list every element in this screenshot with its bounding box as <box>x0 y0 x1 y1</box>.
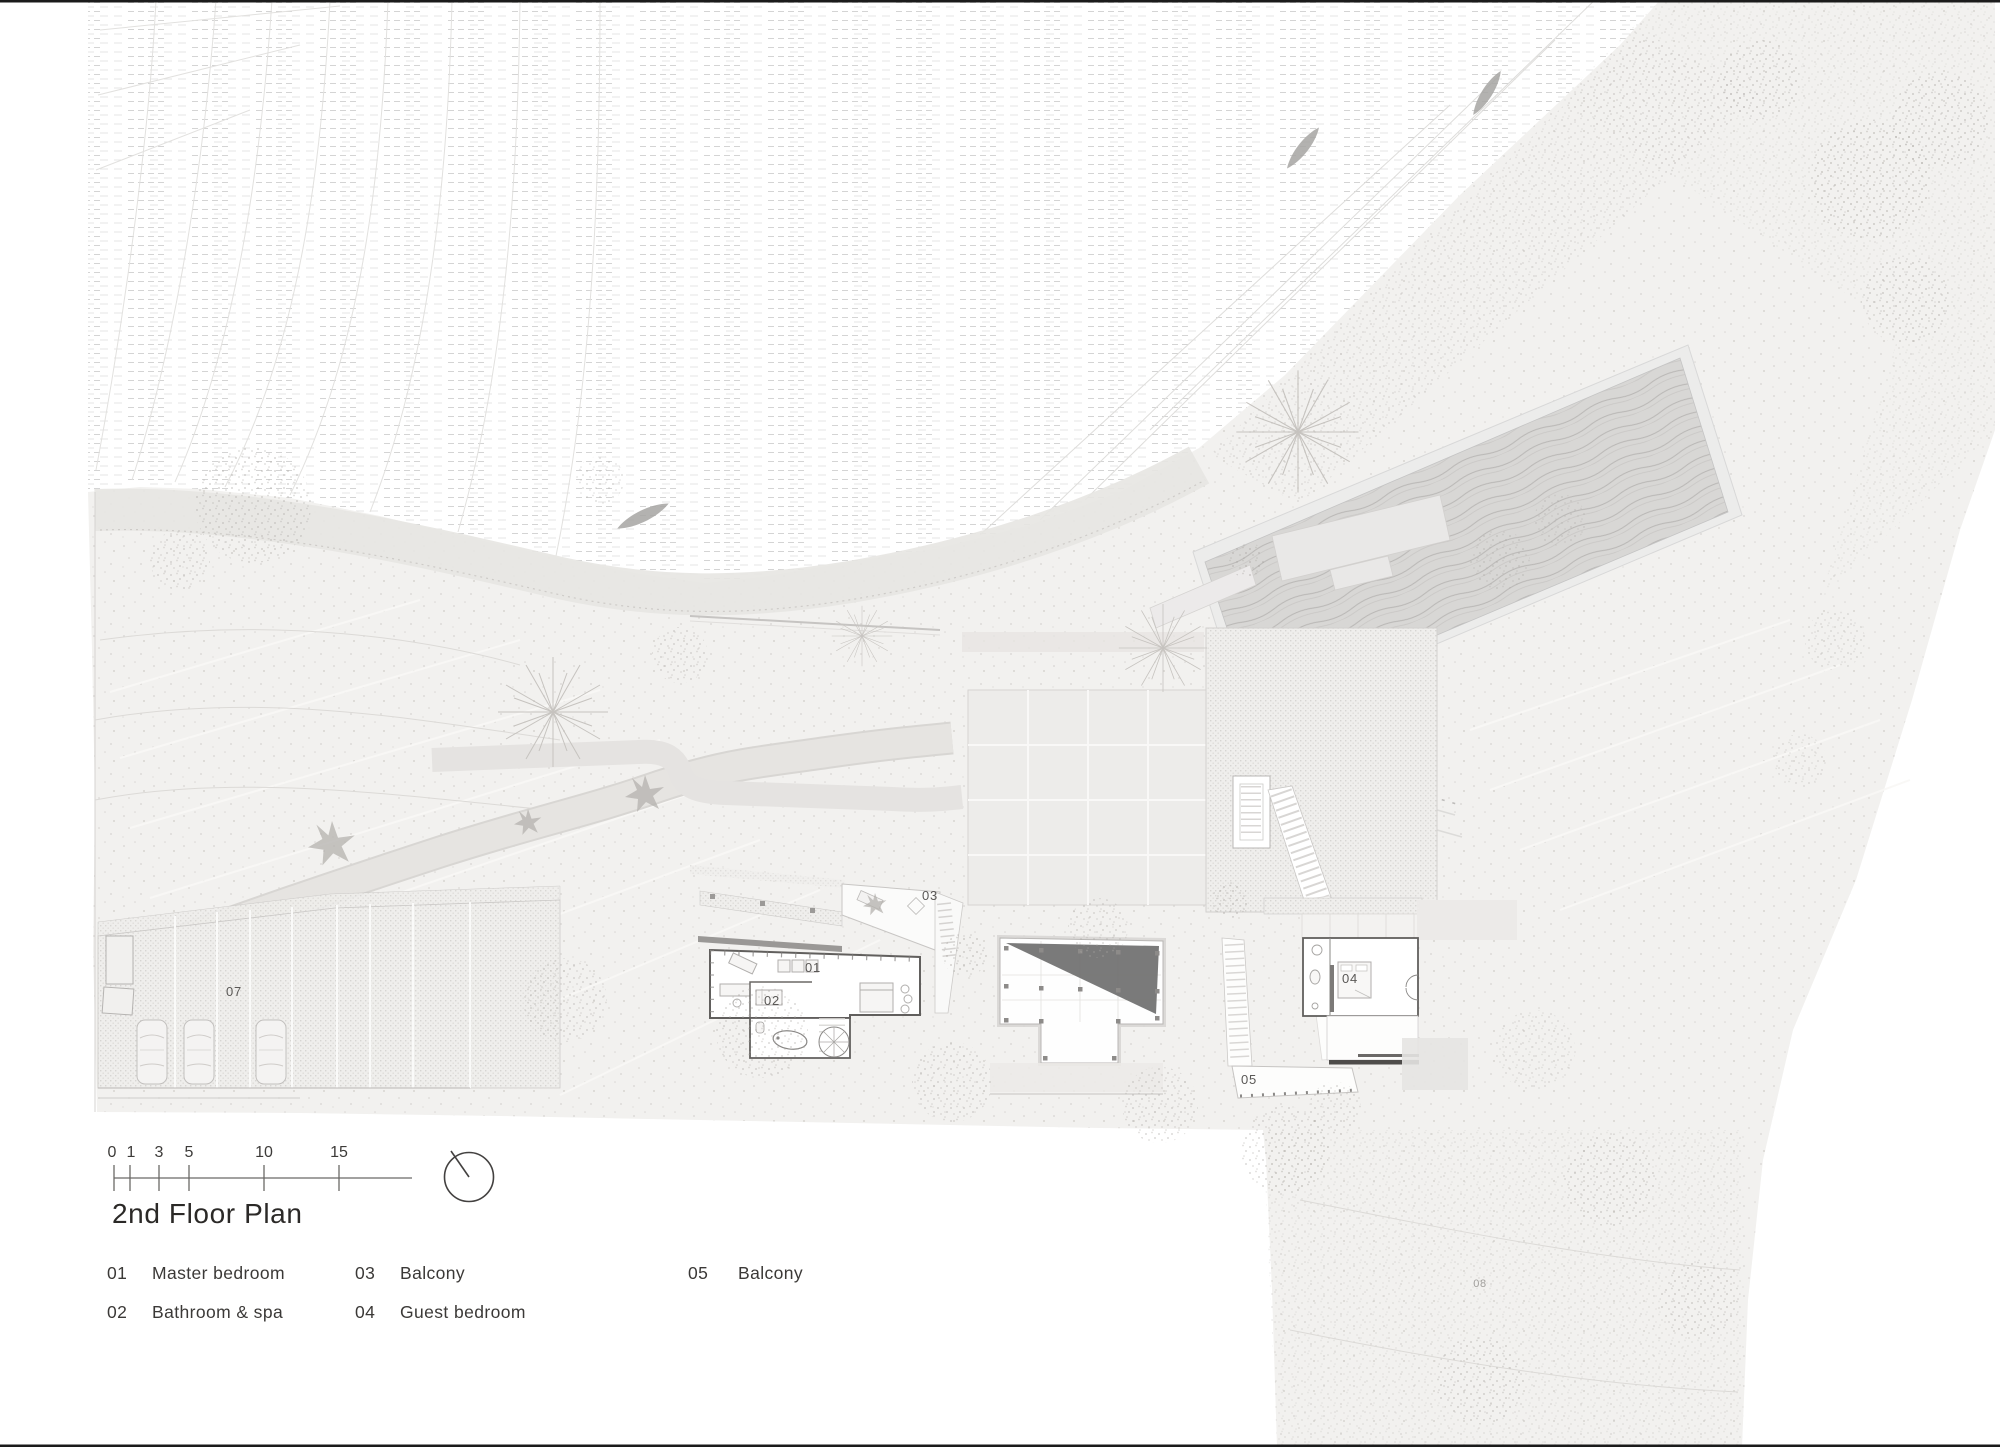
toilet-icon <box>1310 970 1320 984</box>
sheet-border-top <box>0 0 2000 3</box>
label-area-07: 07 <box>226 984 242 999</box>
bed-icon <box>860 983 893 1012</box>
upper-ground-patch <box>1417 900 1517 940</box>
label-room-04: 04 <box>1342 971 1358 986</box>
legend-label: Bathroom & spa <box>152 1302 283 1323</box>
scale-tick-3: 3 <box>155 1144 164 1161</box>
floor-plan-sheet: 01 02 03 04 05 07 08 0 1 3 5 10 15 2nd F… <box>0 0 2000 1447</box>
car-icon <box>184 1020 214 1084</box>
scale-bar: 0 1 3 5 10 15 <box>108 1144 412 1191</box>
legend-num: 02 <box>107 1302 127 1323</box>
label-room-05: 05 <box>1241 1072 1257 1087</box>
pavilion <box>990 938 1163 1094</box>
car-icon <box>137 1020 167 1084</box>
label-room-03: 03 <box>922 888 938 903</box>
scale-numbers: 0 1 3 5 10 15 <box>108 1144 348 1161</box>
legend-num: 04 <box>355 1302 375 1323</box>
guest-wall-segment <box>1330 965 1334 1012</box>
label-area-08: 08 <box>1473 1278 1486 1290</box>
guest-roof-hatch <box>1264 898 1422 914</box>
label-room-02: 02 <box>764 993 780 1008</box>
scale-tick-0: 0 <box>108 1144 117 1161</box>
legend-num: 05 <box>688 1263 708 1284</box>
guest-roof-band <box>1302 914 1422 938</box>
legend-label: Guest bedroom <box>400 1302 526 1323</box>
legend-label: Balcony <box>738 1263 803 1284</box>
tree-canopy <box>195 447 311 563</box>
car-icon <box>256 1020 286 1084</box>
north-arrow-icon <box>445 1151 494 1202</box>
storage-room <box>102 987 134 1015</box>
page-title: 2nd Floor Plan <box>112 1198 303 1230</box>
legend-label: Balcony <box>400 1263 465 1284</box>
legend-num: 01 <box>107 1263 127 1284</box>
spiral-stair-treads <box>819 1027 849 1057</box>
scale-tick-15: 15 <box>330 1144 348 1161</box>
scale-tick-5: 5 <box>185 1144 194 1161</box>
garage-area <box>98 886 560 1098</box>
legend-num: 03 <box>355 1263 375 1284</box>
stair-core <box>1233 776 1270 848</box>
legend-label: Master bedroom <box>152 1263 285 1284</box>
scale-tick-10: 10 <box>255 1144 273 1161</box>
storage-room <box>106 936 133 984</box>
side-ground-patch <box>1402 1038 1468 1090</box>
label-room-01: 01 <box>805 960 821 975</box>
scale-tick-1: 1 <box>127 1144 136 1161</box>
